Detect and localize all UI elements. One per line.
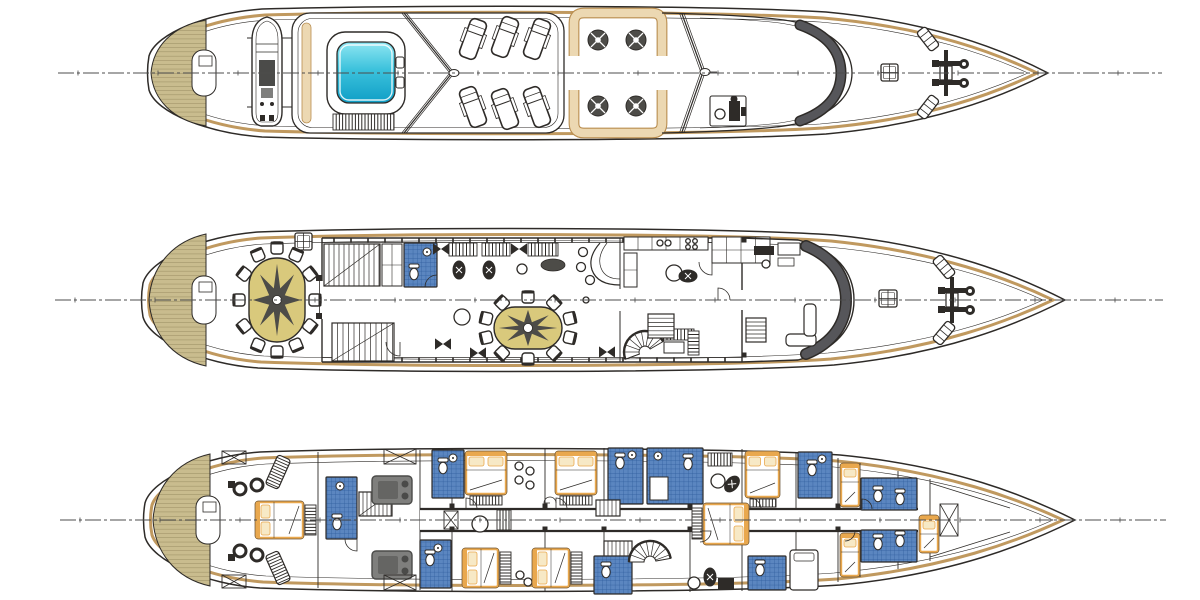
side-table [454, 309, 470, 325]
desk [718, 578, 734, 590]
vip-bed [703, 503, 749, 545]
door-post [836, 504, 841, 509]
dining-chair [271, 346, 284, 359]
bar-stool [577, 263, 586, 272]
bed-footboard [560, 496, 592, 505]
guest-bed [465, 451, 507, 495]
bed-footboard [750, 499, 776, 507]
stern-locker [199, 282, 212, 292]
stool [526, 481, 534, 489]
stool [688, 577, 700, 589]
crew-bunk [919, 515, 939, 553]
bathroom [420, 540, 451, 588]
stern-locker [203, 502, 216, 512]
lower-deck [60, 448, 1166, 594]
deck-grating [333, 114, 394, 130]
crew-bathroom [861, 478, 917, 510]
guest-bed [532, 548, 570, 588]
helm-console [754, 246, 774, 255]
stool [524, 578, 532, 586]
door-post [450, 527, 455, 532]
galley-counter [624, 253, 637, 287]
door-post [543, 527, 548, 532]
bar-stool [579, 248, 588, 257]
crew-bunk [840, 463, 860, 507]
shower [650, 477, 668, 500]
tender-boat [252, 17, 282, 126]
pillow [794, 553, 814, 561]
bathroom [608, 448, 643, 504]
guest-bed [462, 548, 499, 588]
guest-bed [745, 451, 780, 498]
stool [715, 109, 725, 119]
bed-bench [692, 508, 702, 539]
round-table [626, 30, 646, 50]
stove-burner [693, 239, 698, 244]
armchair [483, 261, 496, 280]
bathroom [798, 452, 832, 498]
round-table [588, 96, 608, 116]
day-head [404, 243, 437, 287]
round-table [626, 96, 646, 116]
door-post [742, 238, 747, 243]
stool [517, 264, 527, 274]
staircase [746, 318, 766, 342]
deck-plan-drawing [0, 0, 1200, 600]
side-table [228, 554, 235, 561]
helm-seat [762, 260, 770, 268]
stool [515, 476, 523, 484]
stern-locker [199, 56, 212, 66]
side-table [228, 481, 235, 488]
guest-bed [555, 451, 597, 495]
bathroom [748, 556, 786, 590]
salon-sofa [528, 243, 558, 256]
stool [526, 467, 534, 475]
yacht-deck-plan-sheet [0, 0, 1200, 600]
armchair [234, 545, 246, 557]
armchair [453, 261, 466, 280]
main-deck [55, 229, 1163, 372]
dining-chair [522, 291, 535, 304]
skylight-hatch [879, 290, 897, 307]
bed-footboard [470, 496, 502, 505]
coffee-table [541, 259, 565, 271]
door-post [742, 353, 747, 358]
stool [516, 571, 524, 579]
door-post [602, 527, 607, 532]
sun-deck [58, 6, 1162, 139]
dinette-sofa [688, 331, 699, 355]
stove-burner [686, 245, 691, 250]
chart-table [778, 243, 800, 255]
salon-sofa [449, 243, 477, 256]
armchair [251, 549, 263, 561]
skylight-hatch [295, 233, 312, 250]
locker [382, 244, 402, 286]
staircase [648, 314, 674, 338]
dining-chair [271, 242, 284, 255]
cabin-table [711, 474, 725, 488]
door-post [543, 504, 548, 509]
engine [372, 476, 412, 504]
staircase [596, 500, 620, 516]
stove-burner [686, 239, 691, 244]
armchair [704, 568, 717, 587]
pool-ladder [396, 77, 404, 88]
bed-footboard [500, 552, 511, 584]
master-bathroom [326, 477, 357, 539]
capstan [729, 101, 740, 121]
stool [515, 462, 523, 470]
salon-sofa [482, 243, 510, 256]
galley-sink [657, 240, 663, 246]
door-post [316, 313, 322, 319]
stove-burner [693, 245, 698, 250]
dresser [708, 453, 732, 466]
door-post [836, 527, 841, 532]
dinette-table [664, 342, 684, 353]
bathroom [432, 450, 464, 498]
pool-ladder [396, 57, 404, 68]
bathroom [594, 556, 632, 594]
sofa [804, 304, 816, 336]
dining-chair [522, 353, 535, 366]
staircase [324, 244, 380, 286]
bar-stool [586, 276, 595, 285]
galley-sink [665, 240, 671, 246]
armchair [679, 270, 698, 283]
bed-footboard [571, 552, 582, 584]
round-table [588, 30, 608, 50]
armchair [251, 479, 263, 491]
staircase [332, 323, 394, 361]
chart-table [778, 258, 794, 266]
crew-bathroom [861, 530, 917, 562]
armchair [234, 483, 246, 495]
door-post [450, 504, 455, 509]
